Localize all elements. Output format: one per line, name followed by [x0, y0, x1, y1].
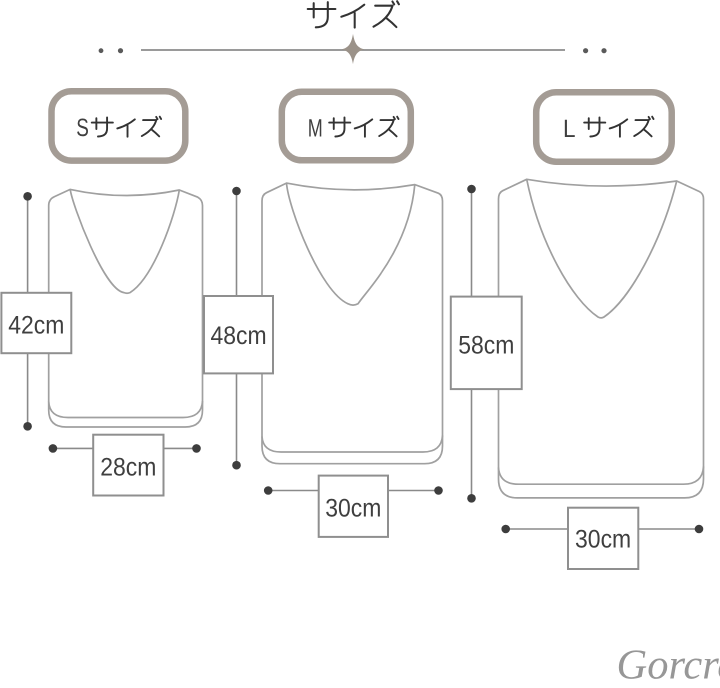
svg-text:48cm: 48cm	[210, 322, 266, 350]
svg-text:S: S	[76, 114, 89, 142]
svg-text:58cm: 58cm	[458, 332, 514, 360]
svg-text:L: L	[563, 115, 576, 143]
svg-text:42cm: 42cm	[8, 311, 64, 339]
svg-text:30cm: 30cm	[325, 494, 381, 522]
svg-text:M: M	[308, 114, 323, 142]
svg-text:28cm: 28cm	[100, 454, 156, 482]
svg-text:30cm: 30cm	[575, 526, 631, 554]
svg-text:Gorcre: Gorcre	[617, 642, 720, 688]
